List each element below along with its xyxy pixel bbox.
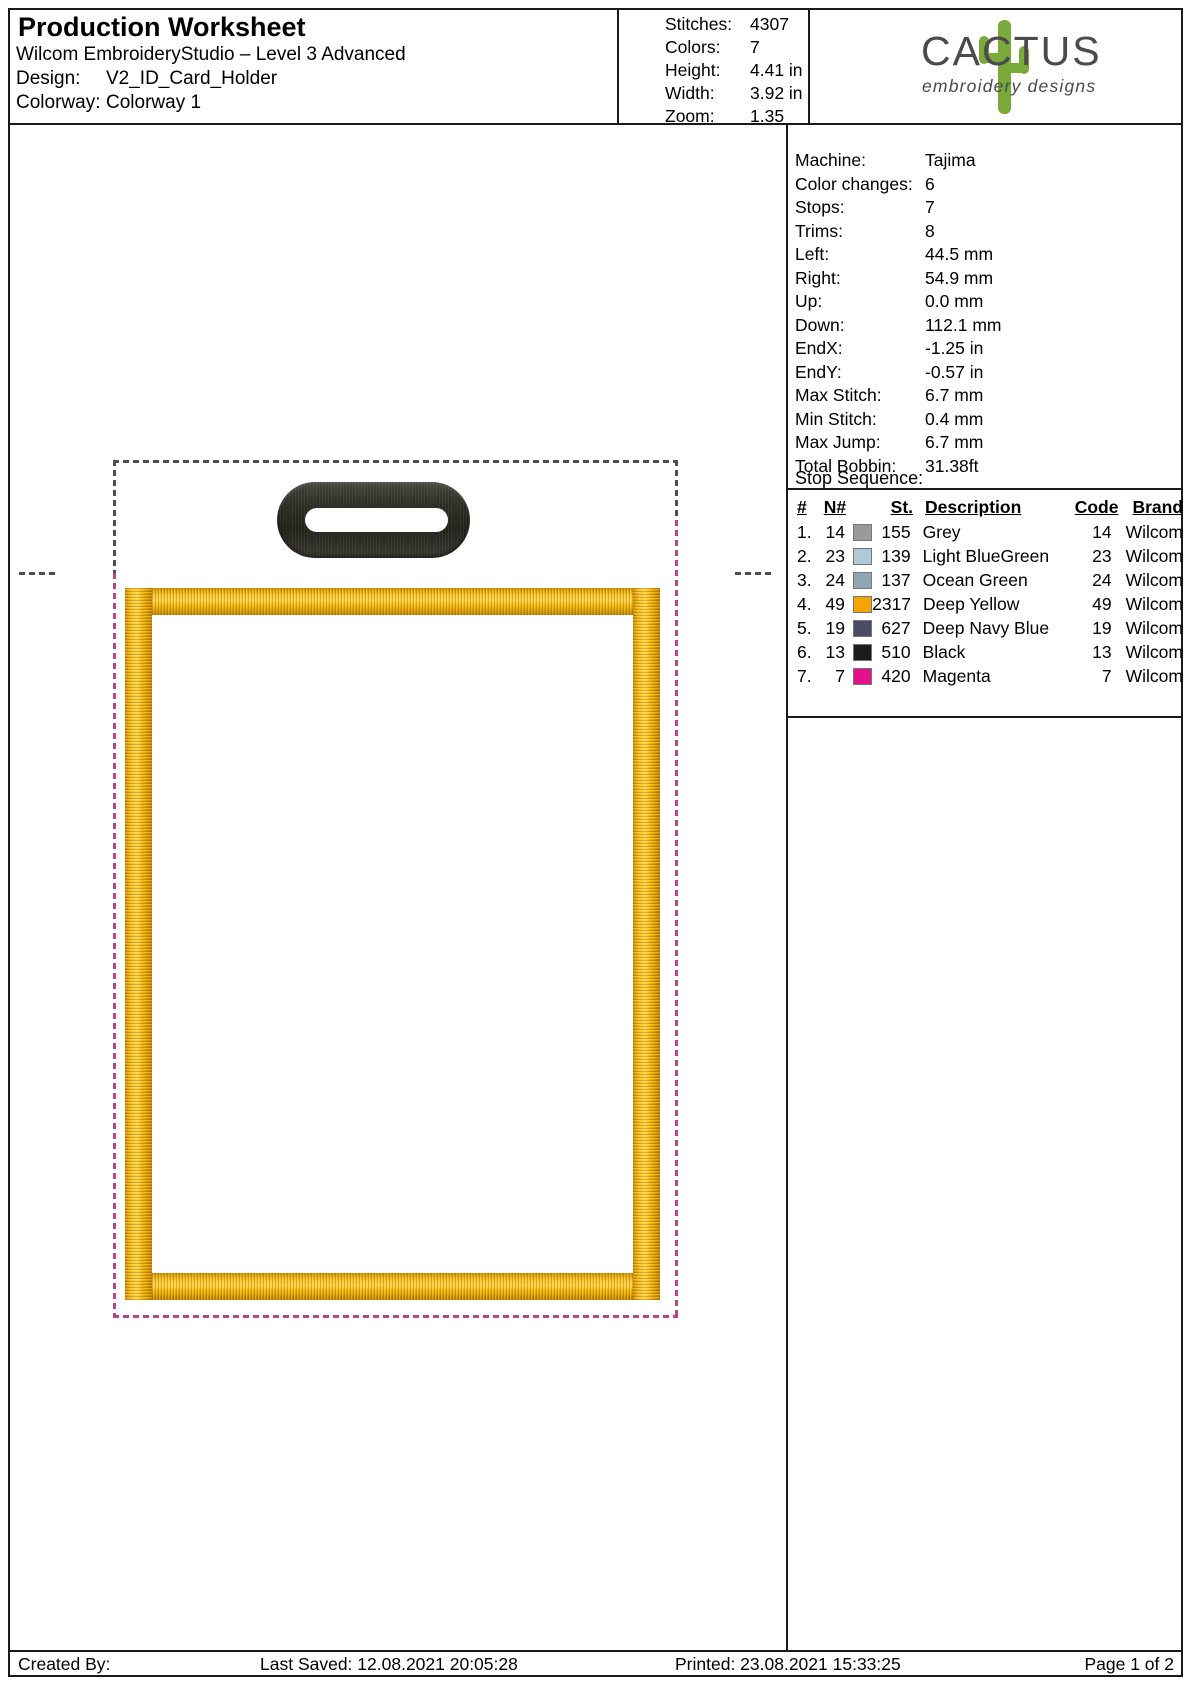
stop-sequence-table: # N# St. Description Code Brand 1. 14 15… — [797, 494, 1183, 688]
stop-sequence-header: # N# St. Description Code Brand — [797, 494, 1183, 520]
page-title: Production Worksheet — [18, 12, 306, 43]
satin-border-top — [125, 588, 660, 615]
thread-code: 13 — [1068, 642, 1111, 663]
thread-brand: Wilcom — [1112, 666, 1183, 687]
stop-row: 5. 19 627 Deep Navy Blue 19 Wilcom — [797, 616, 1183, 640]
title-box: Production Worksheet Wilcom EmbroiderySt… — [10, 10, 617, 123]
badge-slot-satin — [277, 482, 470, 558]
brand-tagline: embroidery designs — [922, 76, 1096, 97]
stitch-count: 2317 — [872, 594, 911, 615]
machine-info-row: Machine:Tajima — [795, 150, 1180, 174]
thread-description: Light BlueGreen — [911, 546, 1069, 567]
thread-brand: Wilcom — [1112, 642, 1183, 663]
last-saved-text: Last Saved: 12.08.2021 20:05:28 — [260, 1654, 518, 1675]
created-by-label: Created By: — [18, 1654, 110, 1675]
info-label: EndX: — [795, 338, 925, 362]
colorway-label: Colorway: — [16, 92, 106, 114]
needle-num: 19 — [822, 618, 845, 639]
stat-value: 7 — [750, 37, 760, 58]
info-value: 0.4 mm — [925, 409, 983, 433]
needle-num: 24 — [822, 570, 845, 591]
info-value: -1.25 in — [925, 338, 983, 362]
card-outline-right-magenta — [675, 520, 678, 1318]
stop-num: 3. — [797, 570, 822, 591]
info-label: Machine: — [795, 150, 925, 174]
stop-row: 6. 13 510 Black 13 Wilcom — [797, 640, 1183, 664]
thread-color-swatch — [853, 524, 872, 541]
card-outline-left-magenta — [113, 573, 116, 1318]
thread-description: Black — [911, 642, 1069, 663]
stop-row: 4. 49 2317 Deep Yellow 49 Wilcom — [797, 592, 1183, 616]
info-value: -0.57 in — [925, 362, 983, 386]
thread-brand: Wilcom — [1112, 522, 1183, 543]
thread-color-swatch — [853, 668, 872, 685]
info-label: Left: — [795, 244, 925, 268]
info-value: 112.1 mm — [925, 315, 1002, 339]
needle-num: 14 — [822, 522, 845, 543]
info-value: 8 — [925, 221, 935, 245]
badge-slot-hole — [305, 508, 448, 532]
stitch-count: 420 — [872, 666, 910, 687]
info-value: 6 — [925, 174, 935, 198]
info-label: EndY: — [795, 362, 925, 386]
stat-value: 3.92 in — [750, 83, 803, 104]
thread-description: Deep Navy Blue — [911, 618, 1069, 639]
stitch-count: 155 — [872, 522, 910, 543]
stop-row: 2. 23 139 Light BlueGreen 23 Wilcom — [797, 544, 1183, 568]
stop-num: 5. — [797, 618, 822, 639]
col-code: Code — [1074, 497, 1118, 518]
col-swatch-spacer — [854, 499, 874, 516]
colorway-name: Colorway 1 — [106, 92, 201, 114]
thread-brand: Wilcom — [1112, 618, 1183, 639]
stop-row: 7. 7 420 Magenta 7 Wilcom — [797, 664, 1183, 688]
stat-label: Colors: — [665, 37, 750, 58]
thread-color-swatch — [853, 620, 872, 637]
stop-row: 3. 24 137 Ocean Green 24 Wilcom — [797, 568, 1183, 592]
col-brand: Brand — [1118, 497, 1183, 518]
stop-num: 4. — [797, 594, 822, 615]
printed-text: Printed: 23.08.2021 15:33:25 — [675, 1654, 901, 1675]
info-value: 0.0 mm — [925, 291, 983, 315]
machine-info-row: Right:54.9 mm — [795, 268, 1180, 292]
needle-num: 49 — [822, 594, 845, 615]
info-label: Down: — [795, 315, 925, 339]
satin-border-right — [633, 588, 660, 1300]
col-st: St. — [874, 497, 913, 518]
design-label: Design: — [16, 68, 106, 90]
info-value: 7 — [925, 197, 935, 221]
thread-color-swatch — [853, 548, 872, 565]
thread-color-swatch — [853, 572, 872, 589]
info-label: Max Jump: — [795, 432, 925, 456]
thread-code: 23 — [1068, 546, 1111, 567]
machine-info-row: Min Stitch:0.4 mm — [795, 409, 1180, 433]
machine-info-row: Down:112.1 mm — [795, 315, 1180, 339]
machine-info-row: Stops:7 — [795, 197, 1180, 221]
design-row: Design: V2_ID_Card_Holder — [16, 68, 277, 90]
col-n: N# — [823, 497, 847, 518]
info-value: 54.9 mm — [925, 268, 993, 292]
info-value: 44.5 mm — [925, 244, 993, 268]
thread-description: Magenta — [911, 666, 1069, 687]
card-outline-top — [113, 460, 678, 463]
info-value: 6.7 mm — [925, 385, 983, 409]
thread-description: Deep Yellow — [911, 594, 1069, 615]
thread-brand: Wilcom — [1112, 594, 1183, 615]
stop-num: 7. — [797, 666, 822, 687]
stop-row: 1. 14 155 Grey 14 Wilcom — [797, 520, 1183, 544]
main-divider — [786, 125, 788, 1652]
design-name: V2_ID_Card_Holder — [106, 68, 277, 90]
stat-stitches: Stitches:4307 — [665, 14, 789, 35]
machine-info-row: EndY:-0.57 in — [795, 362, 1180, 386]
satin-border-bottom — [125, 1273, 660, 1300]
thread-brand: Wilcom — [1112, 570, 1183, 591]
machine-info-row: Color changes:6 — [795, 174, 1180, 198]
production-worksheet-page: Production Worksheet Wilcom EmbroiderySt… — [0, 0, 1190, 1684]
card-outline-right-grey — [675, 460, 678, 520]
machine-info-panel: Machine:Tajima Color changes:6 Stops:7 T… — [795, 150, 1180, 479]
stop-num: 6. — [797, 642, 822, 663]
info-value: 6.7 mm — [925, 432, 983, 456]
colorway-row: Colorway: Colorway 1 — [16, 92, 201, 114]
stitch-count: 137 — [872, 570, 910, 591]
right-tick-mark — [735, 572, 773, 575]
info-value: 31.38ft — [925, 456, 979, 480]
stat-label: Height: — [665, 60, 750, 81]
needle-num: 7 — [822, 666, 845, 687]
col-desc: Description — [913, 497, 1074, 518]
machine-info-row: Trims:8 — [795, 221, 1180, 245]
stitch-count: 139 — [872, 546, 910, 567]
machine-info-row: Up:0.0 mm — [795, 291, 1180, 315]
stop-sequence-title: Stop Sequence: — [795, 468, 923, 489]
stop-num: 2. — [797, 546, 822, 567]
stats-box: Stitches:4307 Colors:7 Height:4.41 in Wi… — [617, 10, 810, 123]
satin-border-left — [125, 588, 152, 1300]
needle-num: 23 — [822, 546, 845, 567]
footer-top-rule — [10, 1650, 1181, 1652]
stat-label: Stitches: — [665, 14, 750, 35]
thread-color-swatch — [853, 644, 872, 661]
info-label: Max Stitch: — [795, 385, 925, 409]
brand-wordmark: CACTUS — [921, 28, 1102, 75]
stat-height: Height:4.41 in — [665, 60, 803, 81]
info-label: Right: — [795, 268, 925, 292]
needle-num: 13 — [822, 642, 845, 663]
info-label: Up: — [795, 291, 925, 315]
page-number: Page 1 of 2 — [1084, 1654, 1174, 1675]
stitch-count: 510 — [872, 642, 910, 663]
info-label: Min Stitch: — [795, 409, 925, 433]
header-bottom-rule — [10, 123, 1181, 125]
info-value: Tajima — [925, 150, 976, 174]
stat-value: 4307 — [750, 14, 789, 35]
stat-width: Width:3.92 in — [665, 83, 803, 104]
stitch-count: 627 — [872, 618, 910, 639]
thread-brand: Wilcom — [1112, 546, 1183, 567]
stat-value: 4.41 in — [750, 60, 803, 81]
card-outline-bottom — [113, 1315, 678, 1318]
left-tick-mark — [19, 572, 57, 575]
stat-zoom: Zoom:1.35 — [665, 106, 784, 127]
machine-info-row: Left:44.5 mm — [795, 244, 1180, 268]
stat-colors: Colors:7 — [665, 37, 760, 58]
thread-color-swatch — [853, 596, 872, 613]
stat-label: Width: — [665, 83, 750, 104]
thread-code: 24 — [1068, 570, 1111, 591]
thread-code: 14 — [1068, 522, 1111, 543]
logo-box: CACTUS embroidery designs — [812, 10, 1183, 123]
machine-info-row: EndX:-1.25 in — [795, 338, 1180, 362]
software-subtitle: Wilcom EmbroideryStudio – Level 3 Advanc… — [16, 44, 406, 66]
stat-label: Zoom: — [665, 106, 750, 127]
card-outline-left-grey — [113, 460, 116, 573]
info-label: Stops: — [795, 197, 925, 221]
machine-info-row: Max Stitch:6.7 mm — [795, 385, 1180, 409]
thread-code: 7 — [1068, 666, 1111, 687]
col-num: # — [797, 497, 823, 518]
info-label: Trims: — [795, 221, 925, 245]
info-label: Color changes: — [795, 174, 925, 198]
stop-sequence-bottom-rule — [788, 716, 1181, 718]
stop-num: 1. — [797, 522, 822, 543]
machine-info-row: Max Jump:6.7 mm — [795, 432, 1180, 456]
thread-description: Ocean Green — [911, 570, 1069, 591]
stat-value: 1.35 — [750, 106, 784, 127]
thread-code: 19 — [1068, 618, 1111, 639]
thread-description: Grey — [911, 522, 1069, 543]
thread-code: 49 — [1069, 594, 1112, 615]
